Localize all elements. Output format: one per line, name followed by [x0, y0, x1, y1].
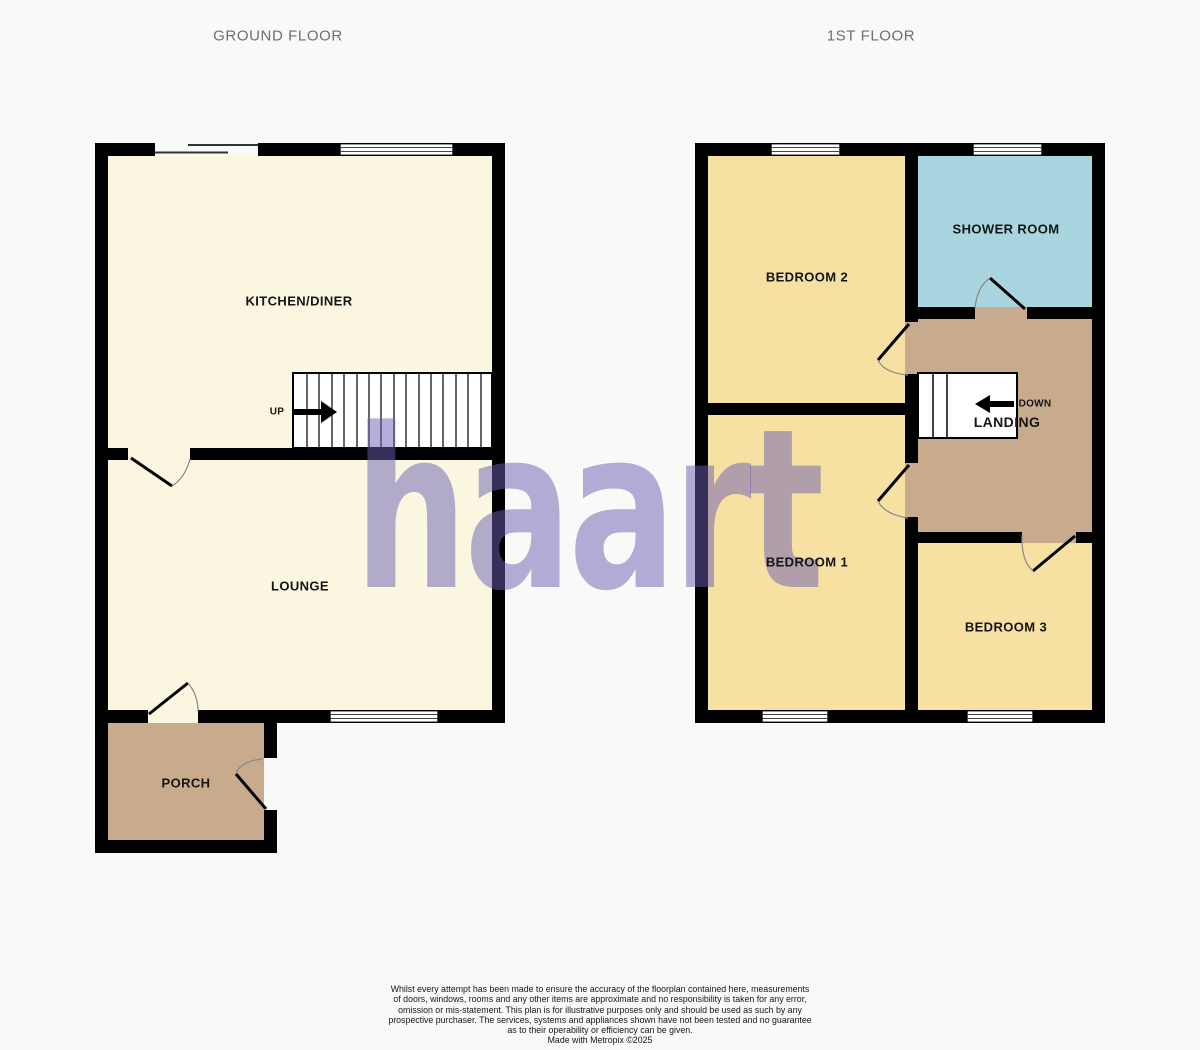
bedroom-3-label: BEDROOM 3: [965, 620, 1047, 635]
open-entry-lines: [155, 145, 258, 153]
bedroom-1-label: BEDROOM 1: [766, 555, 848, 570]
ground-floor-title: GROUND FLOOR: [213, 28, 343, 45]
window: [762, 711, 828, 723]
window: [967, 711, 1033, 723]
landing-label: LANDING: [974, 414, 1041, 430]
window: [330, 711, 438, 723]
porch-label: PORCH: [162, 776, 211, 791]
first-floor-title: 1ST FLOOR: [827, 28, 915, 45]
door-opening-fill: [905, 322, 918, 374]
bedroom-2-label: BEDROOM 2: [766, 270, 848, 285]
metropix-credit: Made with Metropix ©2025: [0, 1035, 1200, 1045]
shower-room-label: SHOWER ROOM: [953, 222, 1060, 237]
floorplan-page: { "titles": { "ground_floor": "GROUND FL…: [0, 0, 1200, 1050]
stairs-down-label: DOWN: [1019, 399, 1052, 410]
door-opening-fill: [148, 710, 198, 723]
disclaimer-line: Whilst every attempt has been made to en…: [0, 984, 1200, 994]
disclaimer-line: as to their operability or efficiency ca…: [0, 1025, 1200, 1035]
door-opening-fill: [905, 463, 918, 517]
disclaimer-line: of doors, windows, rooms and any other i…: [0, 994, 1200, 1004]
window: [340, 144, 453, 156]
disclaimer-text: Whilst every attempt has been made to en…: [0, 984, 1200, 1046]
ground-floor-plan: [95, 143, 505, 853]
window: [973, 144, 1042, 156]
floorplan-graphics: [0, 0, 1200, 1050]
lounge-label: LOUNGE: [271, 579, 329, 594]
kitchen-diner-label: KITCHEN/DINER: [245, 294, 352, 309]
disclaimer-line: prospective purchaser. The services, sys…: [0, 1015, 1200, 1025]
door-opening-fill: [128, 448, 190, 460]
stairs-up-label: UP: [270, 407, 285, 418]
window: [771, 144, 840, 156]
disclaimer-line: omission or mis-statement. This plan is …: [0, 1005, 1200, 1015]
door-opening-fill: [975, 307, 1027, 319]
